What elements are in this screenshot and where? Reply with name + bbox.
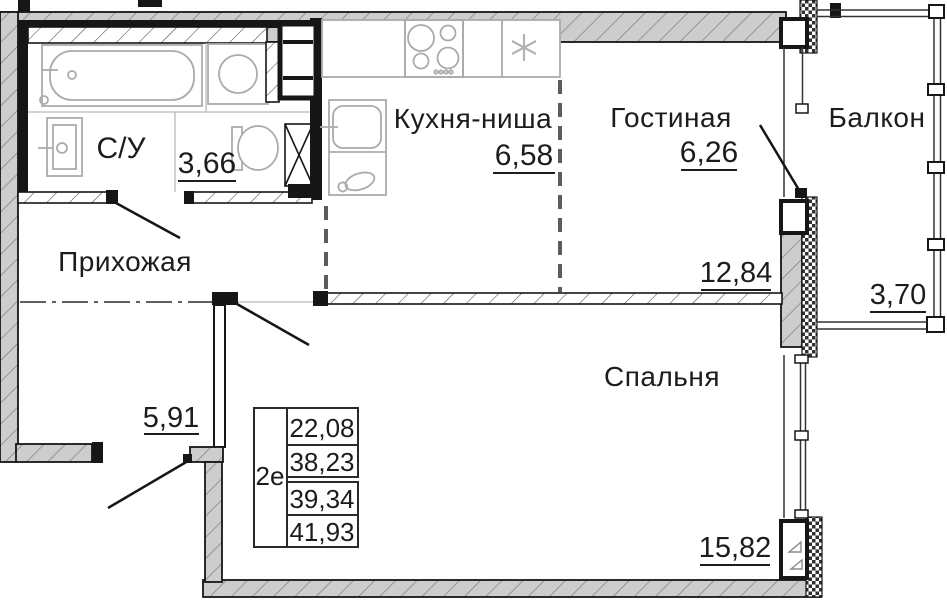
wall-stub (18, 0, 30, 12)
glazing-mullion (928, 84, 944, 95)
glazing-mullion (928, 239, 944, 250)
summary-area-value: 38,23 (289, 447, 354, 477)
window-transom (795, 431, 808, 440)
door-hinge-block (106, 190, 118, 204)
bottom-wall (203, 580, 821, 597)
room-area-hallway: 5,91 (143, 402, 199, 434)
wash-basin-icon (38, 118, 82, 176)
summary-area-value: 41,93 (289, 517, 354, 547)
summary-table: 2е 22,08 38,23 39,34 41,93 (254, 408, 358, 547)
wall-end-block (212, 292, 238, 305)
bedroom-left-wall-upper (214, 305, 225, 447)
room-area-bedroom: 15,82 (699, 532, 772, 564)
room-label-living: Гостиная (610, 102, 732, 133)
room-area-balcony: 3,70 (870, 279, 926, 311)
bedroom-door-swing (237, 304, 309, 345)
room-area-bathroom: 3,66 (178, 147, 236, 180)
room-area-living: 6,26 (680, 136, 738, 169)
left-wall (0, 12, 18, 462)
door-jamb-block (184, 191, 194, 204)
crossed-duct-icon (285, 124, 314, 198)
bedroom-wall-corner (190, 447, 223, 462)
floor-plan: С/У 3,66 Прихожая 5,91 Кухня-ниша 6,58 Г… (0, 0, 947, 600)
glazing-mullion (928, 162, 944, 173)
window-pier-box (781, 19, 807, 47)
glazing-corner-post (927, 317, 944, 332)
floor-plan-page: С/У 3,66 Прихожая 5,91 Кухня-ниша 6,58 Г… (0, 0, 947, 600)
room-area-kitchen: 6,58 (495, 139, 553, 172)
bedroom-window (784, 355, 808, 518)
window-pier-box (781, 201, 807, 233)
glazing-corner-post (929, 5, 944, 18)
bathtub-icon (40, 45, 202, 106)
bathroom-room (18, 18, 322, 238)
entrance-door-swing (108, 461, 188, 508)
window-pier-box-bottom (781, 521, 807, 578)
bathroom-wall-bottom-left (18, 192, 110, 203)
wall-stub (138, 0, 162, 7)
bathroom-door-swing (116, 203, 180, 238)
toilet-icon (232, 126, 278, 170)
entrance-sill-left (16, 444, 92, 462)
bedroom-left-wall-lower (205, 462, 222, 582)
room-label-balcony: Балкон (829, 102, 926, 133)
right-wall-pier (781, 233, 802, 347)
bathroom-wall-left (18, 20, 28, 194)
room-label-hallway: Прихожая (58, 246, 192, 277)
window-transom (796, 104, 808, 113)
washing-machine-icon (208, 44, 268, 104)
door-hinge-block (795, 188, 807, 198)
summary-type-label: 2е (256, 461, 285, 491)
entrance-jamb-block (92, 442, 103, 463)
room-label-kitchen: Кухня-ниша (394, 103, 552, 134)
window-transom (795, 510, 808, 518)
room-area-living-zone: 12,84 (700, 257, 773, 289)
balcony-door-swing (760, 125, 799, 190)
partition-wall (315, 293, 782, 304)
room-label-bedroom: Спальня (604, 361, 720, 392)
room-label-bathroom: С/У (96, 132, 146, 165)
window-transom (795, 355, 808, 363)
entrance (16, 442, 192, 508)
partition-end-block (313, 291, 328, 306)
summary-area-value: 22,08 (289, 413, 354, 443)
summary-area-value: 39,34 (289, 484, 354, 514)
bathroom-wall-lining (28, 27, 267, 43)
